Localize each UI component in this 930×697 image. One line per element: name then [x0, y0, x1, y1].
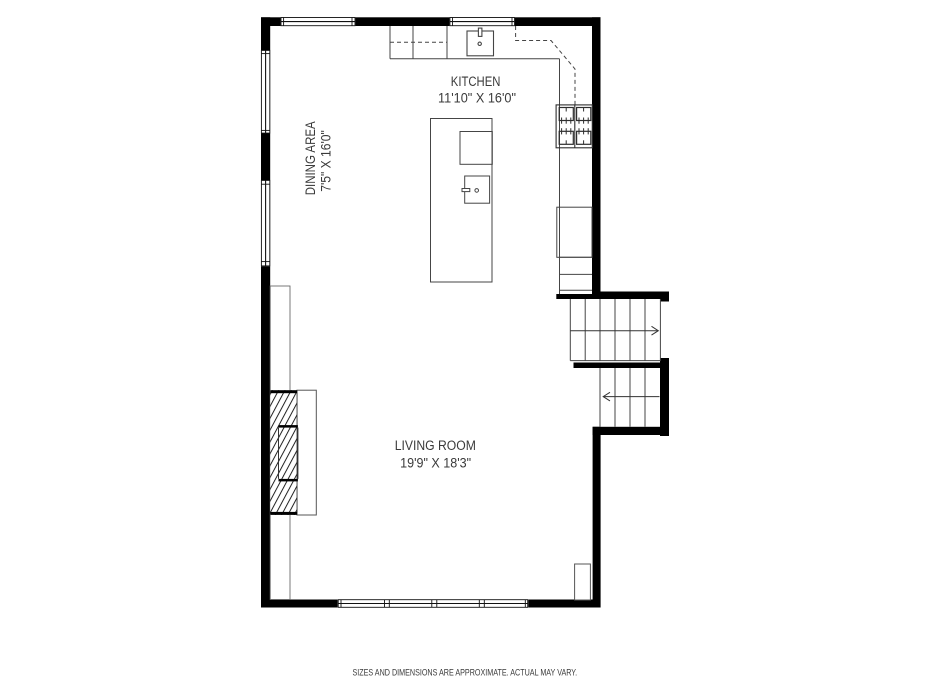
svg-text:SIZES AND DIMENSIONS ARE APPRO: SIZES AND DIMENSIONS ARE APPROXIMATE. AC…: [352, 668, 577, 678]
svg-text:19'9" X 18'3": 19'9" X 18'3": [400, 455, 471, 471]
svg-text:DINING AREA: DINING AREA: [303, 121, 318, 195]
svg-text:7'5" X 16'0": 7'5" X 16'0": [318, 130, 334, 192]
svg-text:KITCHEN: KITCHEN: [451, 74, 501, 89]
svg-text:LIVING ROOM: LIVING ROOM: [395, 437, 476, 453]
svg-text:11'10" X 16'0": 11'10" X 16'0": [438, 90, 516, 106]
